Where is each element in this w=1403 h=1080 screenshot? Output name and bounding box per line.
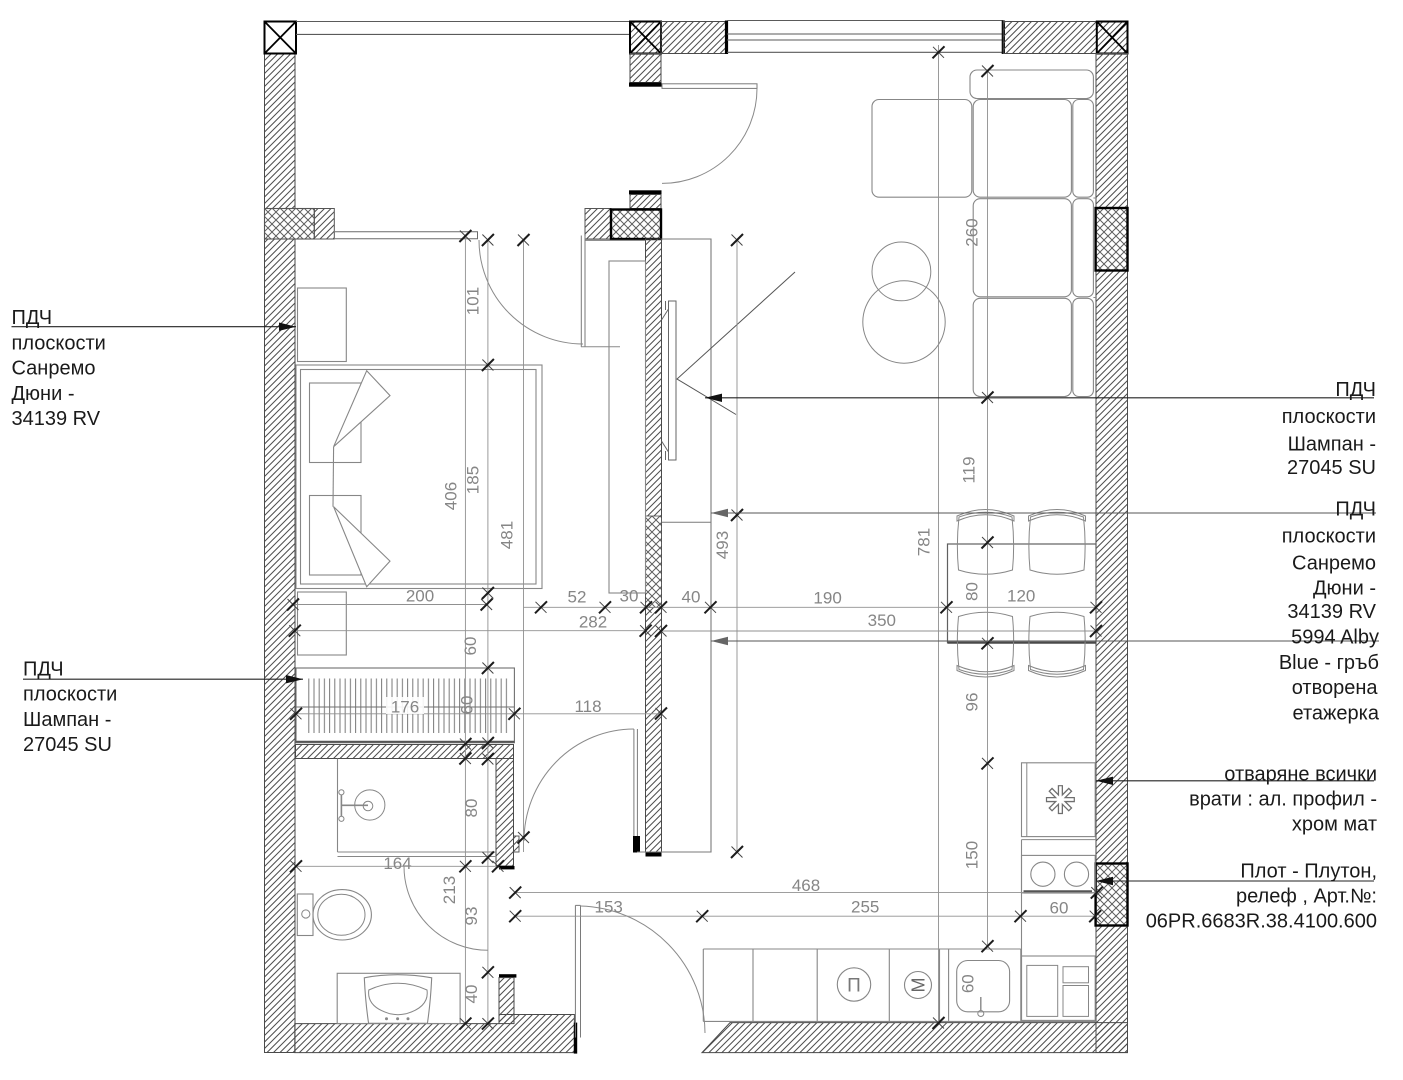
- svg-text:34139 RV: 34139 RV: [1287, 601, 1376, 623]
- svg-text:40: 40: [682, 588, 701, 607]
- svg-text:120: 120: [1007, 587, 1035, 606]
- svg-text:34139 RV: 34139 RV: [12, 408, 101, 430]
- svg-text:260: 260: [963, 218, 982, 246]
- svg-text:Санремо: Санремо: [1292, 553, 1376, 575]
- svg-text:468: 468: [792, 876, 820, 895]
- svg-text:200: 200: [406, 587, 434, 606]
- svg-text:60: 60: [458, 696, 477, 715]
- svg-text:ПДЧ: ПДЧ: [1335, 379, 1376, 401]
- svg-text:60: 60: [959, 974, 978, 993]
- svg-text:етажерка: етажерка: [1293, 702, 1380, 724]
- svg-text:06PR.6683R.38.4100.600: 06PR.6683R.38.4100.600: [1146, 911, 1377, 933]
- svg-text:80: 80: [462, 799, 481, 818]
- svg-text:релеф , Арт.№:: релеф , Арт.№:: [1236, 886, 1377, 908]
- svg-text:282: 282: [579, 613, 607, 632]
- svg-text:Шампан -: Шампан -: [1288, 433, 1376, 455]
- svg-text:плоскости: плоскости: [12, 332, 106, 354]
- svg-text:Плот - Плутон,: Плот - Плутон,: [1240, 861, 1377, 883]
- svg-text:хром мат: хром мат: [1292, 814, 1377, 836]
- svg-text:164: 164: [383, 854, 411, 873]
- svg-text:493: 493: [713, 531, 732, 559]
- svg-text:153: 153: [595, 898, 623, 917]
- svg-text:406: 406: [442, 482, 461, 510]
- svg-text:118: 118: [574, 697, 601, 716]
- svg-text:119: 119: [960, 456, 979, 483]
- svg-text:плоскости: плоскости: [1282, 525, 1376, 547]
- svg-text:101: 101: [464, 287, 483, 315]
- svg-text:60: 60: [1050, 899, 1069, 918]
- svg-text:27045 SU: 27045 SU: [23, 734, 112, 756]
- svg-text:врати : ал. профил -: врати : ал. профил -: [1189, 789, 1377, 811]
- svg-text:отваряне всички: отваряне всички: [1224, 764, 1377, 786]
- svg-text:190: 190: [813, 589, 841, 608]
- svg-text:481: 481: [498, 521, 517, 549]
- svg-text:Blue - гръб: Blue - гръб: [1279, 652, 1379, 674]
- svg-text:П: П: [847, 976, 861, 997]
- svg-text:150: 150: [963, 841, 982, 869]
- svg-text:781: 781: [915, 528, 934, 556]
- svg-text:Дюни -: Дюни -: [1313, 578, 1376, 600]
- svg-text:отворена: отворена: [1292, 677, 1379, 699]
- svg-text:плоскости: плоскости: [23, 684, 117, 706]
- svg-text:350: 350: [868, 611, 896, 630]
- svg-text:плоскости: плоскости: [1282, 406, 1376, 428]
- svg-text:Санремо: Санремо: [12, 358, 96, 380]
- svg-text:93: 93: [462, 907, 481, 926]
- svg-text:213: 213: [440, 876, 459, 904]
- svg-text:176: 176: [391, 698, 419, 717]
- svg-text:185: 185: [464, 466, 483, 494]
- svg-text:5994 Alby: 5994 Alby: [1291, 627, 1379, 649]
- svg-text:ПДЧ: ПДЧ: [23, 658, 64, 680]
- svg-text:30: 30: [620, 587, 639, 606]
- svg-text:80: 80: [963, 582, 982, 601]
- svg-text:60: 60: [461, 637, 480, 656]
- svg-text:27045 SU: 27045 SU: [1287, 457, 1376, 479]
- svg-text:52: 52: [568, 588, 587, 607]
- svg-text:М: М: [909, 978, 929, 993]
- svg-text:96: 96: [963, 693, 982, 712]
- svg-text:ПДЧ: ПДЧ: [12, 307, 53, 329]
- svg-text:40: 40: [462, 985, 481, 1004]
- svg-text:255: 255: [851, 898, 879, 917]
- svg-text:Шампан -: Шампан -: [23, 709, 111, 731]
- svg-text:Дюни -: Дюни -: [12, 383, 75, 405]
- svg-text:ПДЧ: ПДЧ: [1335, 498, 1376, 520]
